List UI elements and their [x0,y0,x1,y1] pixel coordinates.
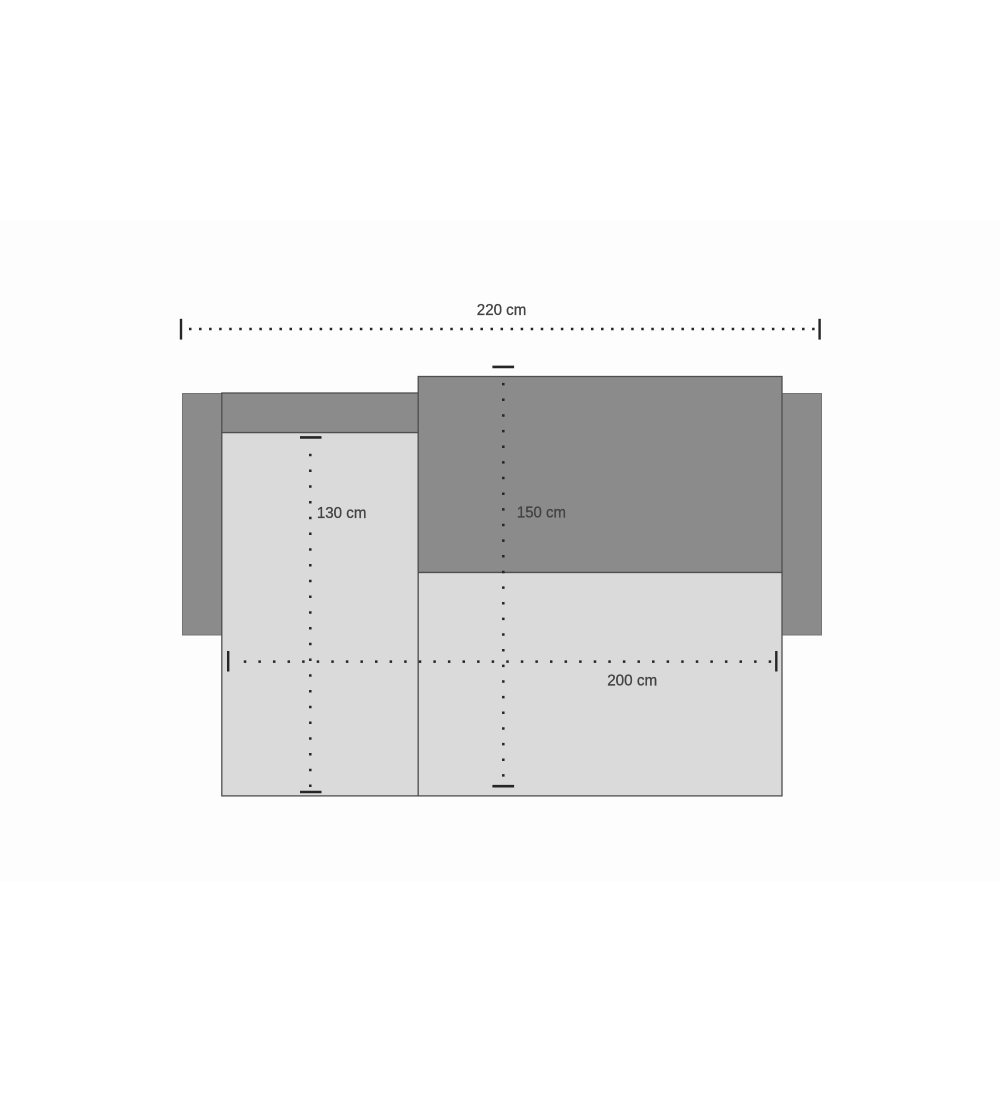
svg-text:220 cm: 220 cm [477,302,527,319]
svg-text:130 cm: 130 cm [317,505,367,522]
svg-text:200 cm: 200 cm [607,673,657,690]
svg-text:150 cm: 150 cm [517,505,566,522]
